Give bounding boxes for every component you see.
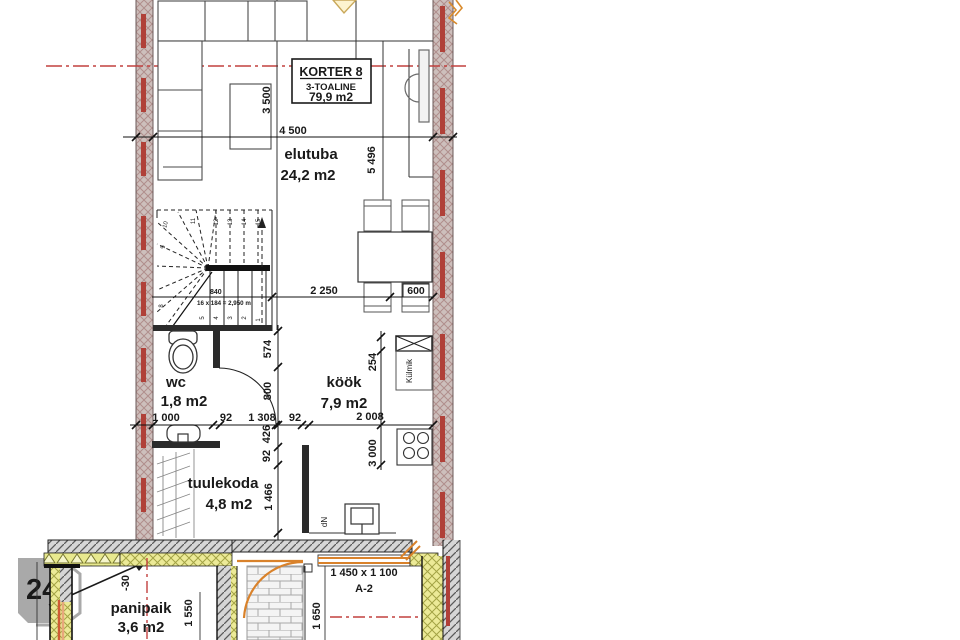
svg-text:79,9 m2: 79,9 m2 xyxy=(309,90,353,104)
svg-text:92: 92 xyxy=(261,450,273,462)
svg-text:16 x 184 = 2,950 m: 16 x 184 = 2,950 m xyxy=(197,300,251,307)
svg-text:3 000: 3 000 xyxy=(367,439,379,467)
svg-text:A-2: A-2 xyxy=(355,583,373,595)
svg-text:KORTER 8: KORTER 8 xyxy=(299,65,362,79)
svg-text:600: 600 xyxy=(407,285,425,297)
svg-text:12: 12 xyxy=(214,218,220,225)
svg-text:1 000: 1 000 xyxy=(152,412,180,424)
svg-text:840: 840 xyxy=(210,289,222,296)
svg-text:574: 574 xyxy=(262,339,274,358)
svg-text:1 450 x 1 100: 1 450 x 1 100 xyxy=(330,567,397,579)
svg-text:15: 15 xyxy=(256,218,262,225)
svg-text:3,6 m2: 3,6 m2 xyxy=(118,619,165,636)
svg-text:-30: -30 xyxy=(120,575,132,591)
svg-text:panipaik: panipaik xyxy=(111,600,173,617)
svg-text:5 496: 5 496 xyxy=(366,146,378,174)
svg-text:13: 13 xyxy=(228,218,234,225)
svg-text:dN: dN xyxy=(320,517,329,527)
svg-text:4 500: 4 500 xyxy=(279,125,307,137)
svg-text:Külmik: Külmik xyxy=(405,358,414,383)
svg-text:1 466: 1 466 xyxy=(263,483,275,511)
svg-text:1 308: 1 308 xyxy=(248,412,276,424)
svg-text:wc: wc xyxy=(165,374,186,391)
svg-text:254: 254 xyxy=(367,352,379,371)
svg-text:11: 11 xyxy=(191,217,197,224)
svg-text:92: 92 xyxy=(289,412,301,424)
svg-text:2 008: 2 008 xyxy=(356,411,384,423)
svg-text:4,8 m2: 4,8 m2 xyxy=(206,496,253,513)
svg-text:tuulekoda: tuulekoda xyxy=(188,475,259,492)
svg-text:800: 800 xyxy=(262,382,274,400)
svg-text:köök: köök xyxy=(326,374,362,391)
svg-text:1 650: 1 650 xyxy=(311,602,323,630)
svg-text:24,2 m2: 24,2 m2 xyxy=(280,167,335,184)
svg-text:426: 426 xyxy=(261,425,273,443)
svg-text:14: 14 xyxy=(242,218,248,225)
svg-text:1 550: 1 550 xyxy=(183,599,195,627)
svg-text:2 250: 2 250 xyxy=(310,285,338,297)
svg-text:7,9 m2: 7,9 m2 xyxy=(321,395,368,412)
svg-text:elutuba: elutuba xyxy=(284,146,338,163)
svg-text:92: 92 xyxy=(220,412,232,424)
svg-text:3 500: 3 500 xyxy=(261,86,273,114)
svg-text:1,8 m2: 1,8 m2 xyxy=(161,393,208,410)
